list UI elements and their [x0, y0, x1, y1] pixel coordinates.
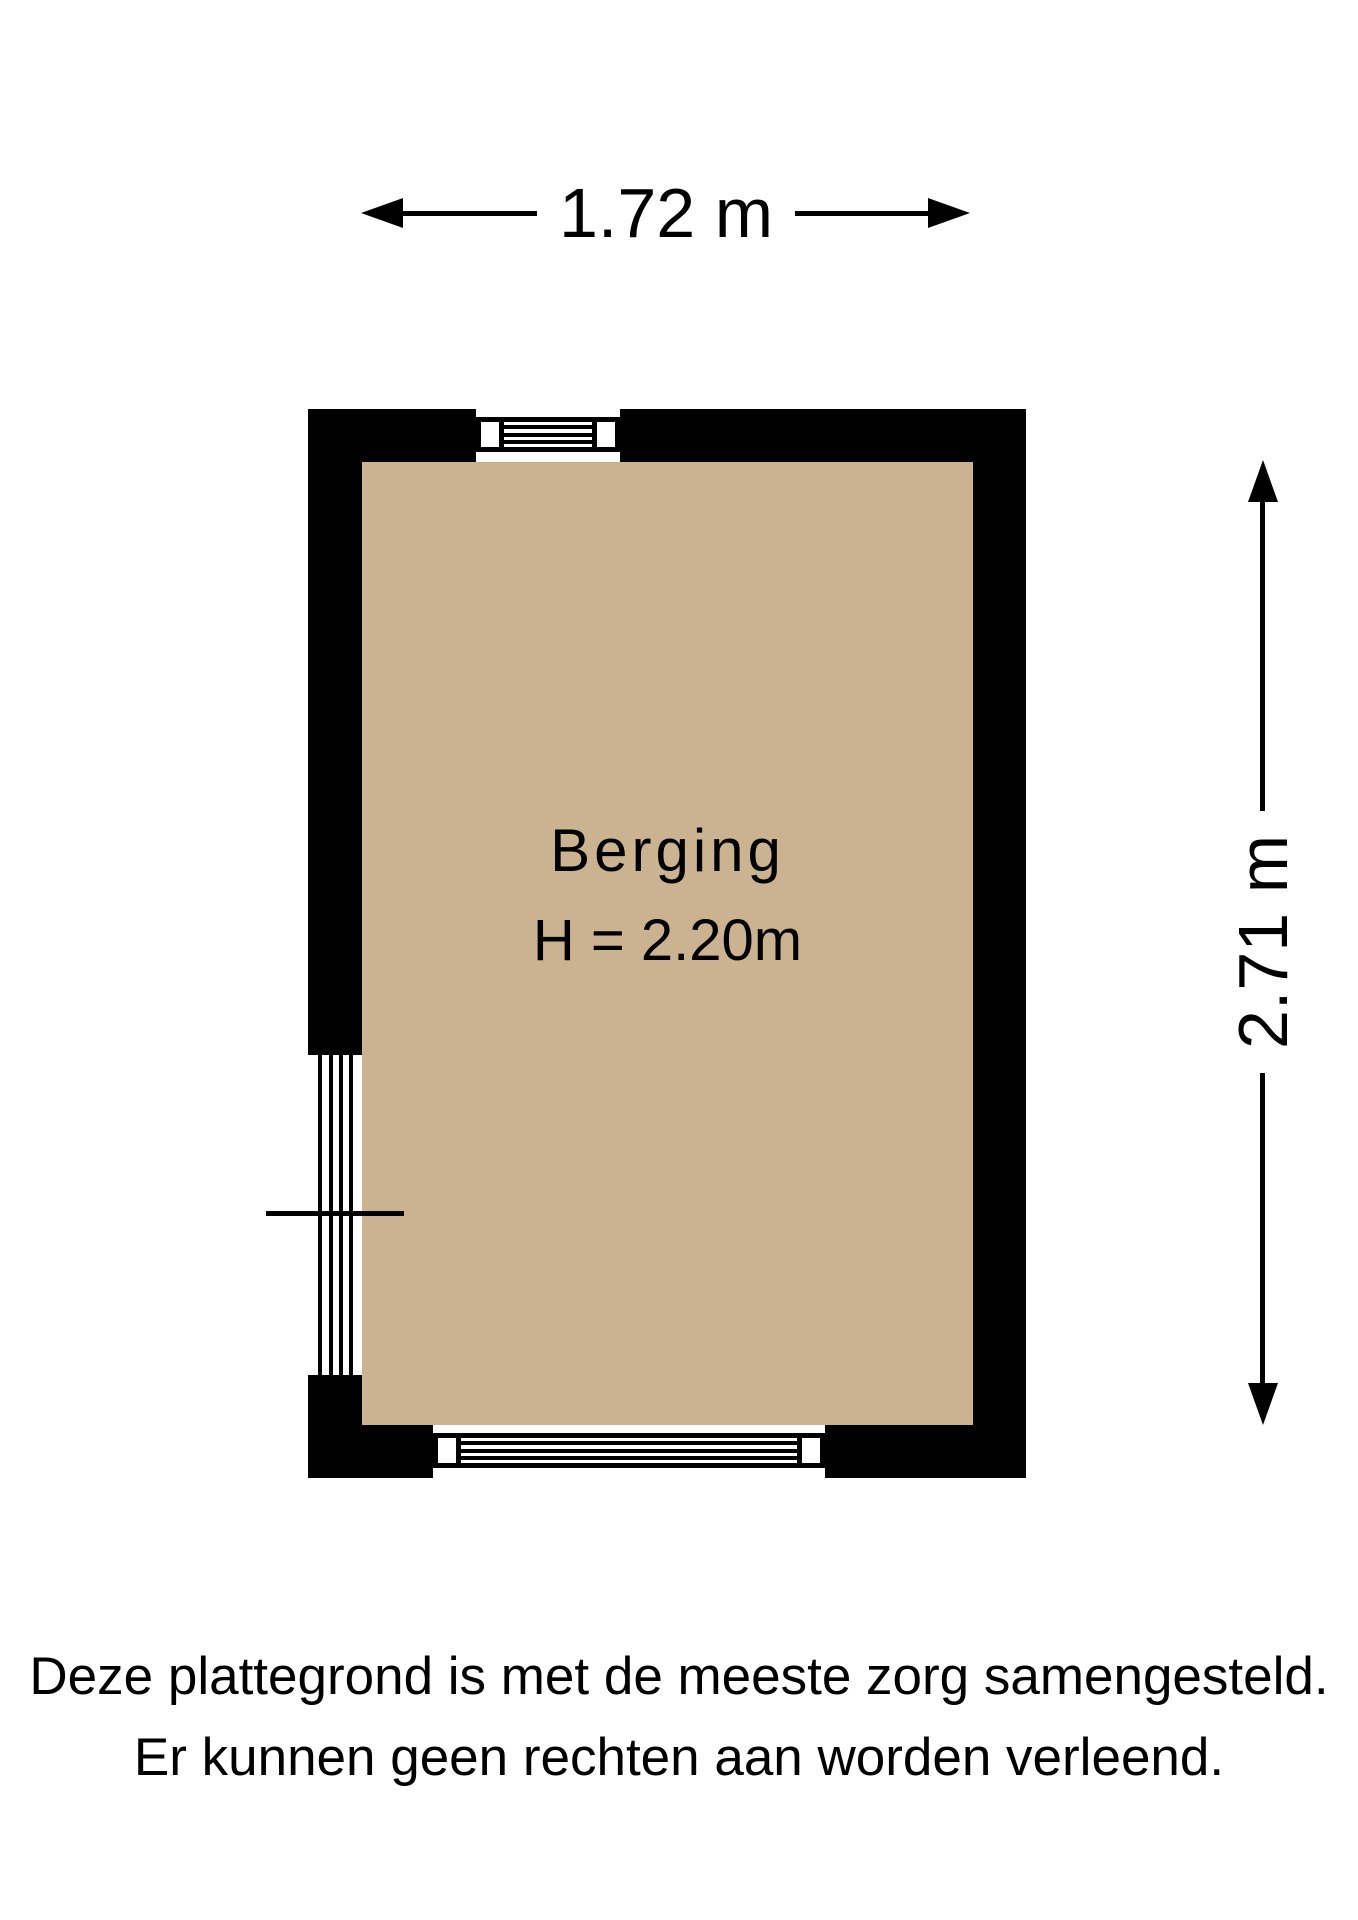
depth-dimension-label: 2.71 m [1221, 811, 1305, 1073]
bottom-window-opening [433, 1425, 825, 1478]
disclaimer-line-1: Deze plattegrond is met de meeste zorg s… [0, 1636, 1358, 1717]
window-icon [433, 1433, 825, 1468]
window-icon [476, 417, 620, 452]
arrow-left-icon [361, 198, 403, 228]
window-glass [504, 422, 592, 447]
width-dimension-label: 1.72 m [537, 171, 795, 255]
floorplan-canvas: 1.72 m Berging H = 2.20m 2.71 m Deze pla… [0, 0, 1358, 1920]
window-glass [461, 1438, 797, 1463]
window-jamb [481, 422, 504, 447]
disclaimer-text: Deze plattegrond is met de meeste zorg s… [0, 1636, 1358, 1798]
room-name-label: Berging [362, 816, 973, 886]
arrow-up-icon [1248, 460, 1278, 502]
arrow-right-icon [928, 198, 970, 228]
door-leaf-line [266, 1211, 404, 1216]
top-window-opening [476, 409, 620, 462]
disclaimer-line-2: Er kunnen geen rechten aan worden verlee… [0, 1717, 1358, 1798]
ceiling-height-label: H = 2.20m [362, 909, 973, 973]
arrow-down-icon [1248, 1383, 1278, 1425]
window-jamb [592, 422, 615, 447]
window-jamb [438, 1438, 461, 1463]
window-jamb [797, 1438, 820, 1463]
